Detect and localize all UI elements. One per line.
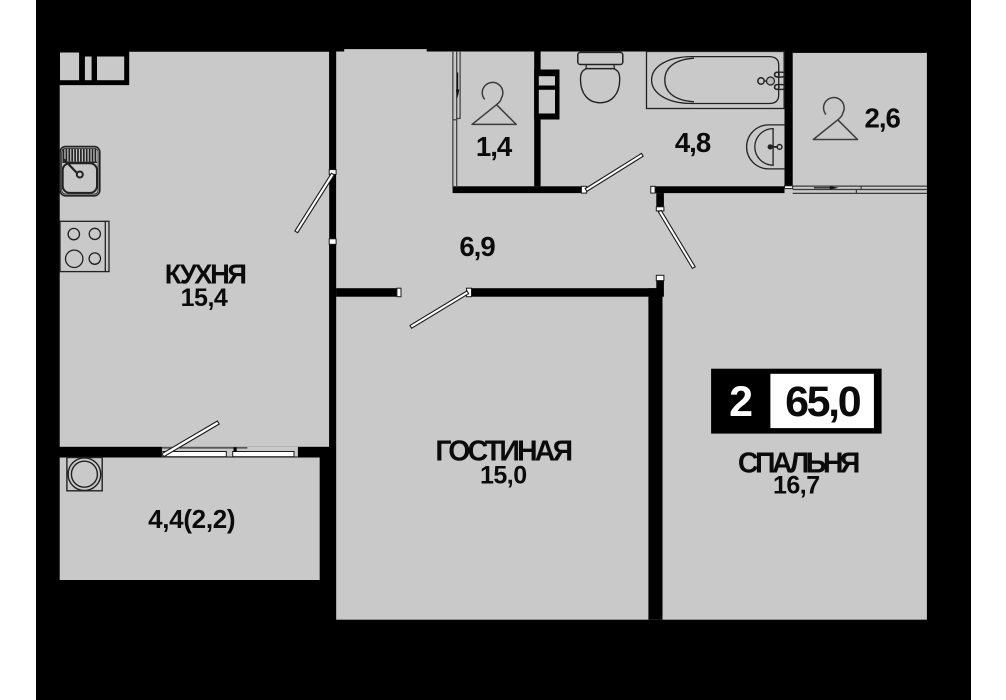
svg-text:1,4: 1,4 (476, 131, 513, 162)
svg-text:15,4: 15,4 (181, 284, 228, 312)
svg-text:2,6: 2,6 (865, 103, 901, 134)
svg-text:4,8: 4,8 (675, 127, 711, 158)
svg-text:2: 2 (729, 378, 752, 426)
svg-text:6,9: 6,9 (459, 231, 495, 262)
svg-text:15,0: 15,0 (480, 461, 527, 489)
svg-text:4,4(2,2): 4,4(2,2) (148, 504, 235, 534)
svg-text:65,0: 65,0 (785, 378, 861, 426)
svg-text:16,7: 16,7 (773, 471, 820, 499)
